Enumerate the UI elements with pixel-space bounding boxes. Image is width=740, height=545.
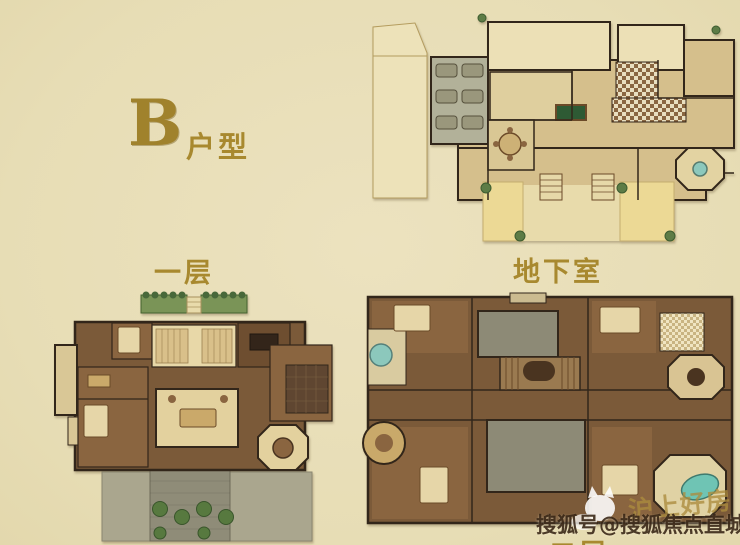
living-room bbox=[156, 389, 238, 447]
hall-wardrobes bbox=[152, 325, 236, 367]
right-rooms bbox=[270, 345, 332, 421]
floorplan-page: B 户型 一层 地下室 二层 bbox=[0, 0, 740, 545]
study-round bbox=[363, 422, 405, 464]
unit-type-label: 户型 bbox=[186, 124, 250, 166]
bay-window-room bbox=[258, 425, 308, 470]
open-to-below-lower bbox=[487, 420, 585, 492]
bath-top-left bbox=[368, 329, 406, 385]
open-to-below-upper bbox=[478, 311, 558, 357]
watermark-account: 搜狐号@搜狐焦点直城站 bbox=[536, 509, 740, 539]
hedges bbox=[141, 292, 247, 314]
bath-top-right bbox=[660, 313, 704, 351]
basement-floorplan bbox=[370, 8, 736, 244]
dining-room bbox=[488, 120, 534, 170]
turret-room bbox=[676, 148, 724, 190]
terraces bbox=[483, 182, 674, 241]
stair-hall bbox=[500, 357, 580, 390]
label-first-floor: 一层 bbox=[154, 251, 214, 290]
unit-letter: B bbox=[128, 92, 182, 156]
first-floor-floorplan bbox=[30, 287, 340, 545]
sitting-bay bbox=[668, 355, 724, 399]
label-basement: 地下室 bbox=[513, 250, 603, 289]
bedroom-top-left bbox=[112, 323, 152, 359]
basement-driveway bbox=[373, 23, 427, 198]
garage bbox=[431, 57, 488, 144]
left-rooms bbox=[78, 367, 148, 467]
